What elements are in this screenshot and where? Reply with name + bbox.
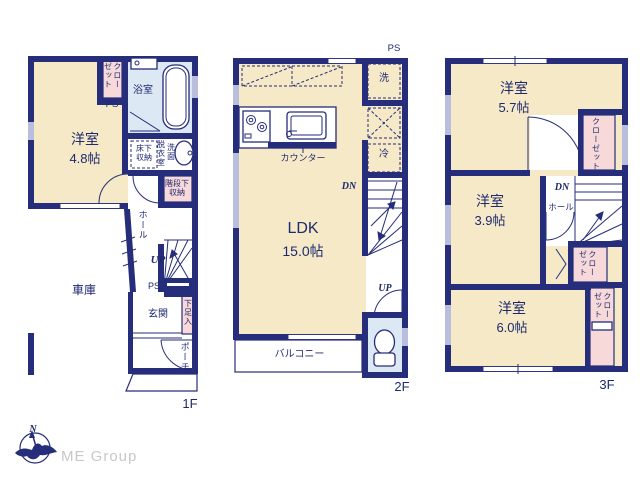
1f-garage-wall — [28, 333, 34, 375]
1f-porch-label: ポーチ — [179, 342, 190, 372]
1f-bottom-window — [60, 204, 120, 209]
compass-north-label: N — [26, 424, 40, 436]
3f-room-c-label: 洋室 — [480, 300, 544, 316]
3f-room-b-size: 3.9帖 — [458, 214, 522, 229]
1f-room-size: 4.8帖 — [50, 152, 120, 167]
2f-dn-label: DN — [336, 181, 362, 193]
3f-room-c-size: 6.0帖 — [480, 321, 544, 336]
3f-dn-label: DN — [549, 182, 575, 194]
1f-bath-window — [192, 76, 198, 98]
floor-plan-page: 洋室 4.8帖 クローゼット PS 浴室 床下 収納 脱衣室 洗面 階段下 収納… — [0, 0, 640, 480]
1f-ps-mid-label: PS — [142, 281, 160, 291]
1f-washroom-door-arc — [133, 176, 160, 203]
2f-washer-label: 洗 — [372, 73, 396, 85]
2f-fridge-label: 冷 — [372, 149, 396, 161]
1f-closet-label: クローゼット — [103, 62, 122, 96]
porch-step — [126, 374, 197, 391]
1f-shoe-label: 下足入 — [183, 299, 192, 331]
1f-hall-label: ホール — [137, 210, 148, 244]
3f-room-a-label: 洋室 — [482, 80, 546, 96]
bathtub — [163, 65, 189, 129]
1f-stair-storage-label: 階段下 収納 — [160, 179, 194, 197]
1f-left-window — [28, 122, 34, 140]
1f-ps-top-label: PS — [98, 100, 126, 111]
2f-balcony-window — [288, 335, 356, 340]
1f-garage-label: 車庫 — [62, 284, 106, 298]
2f-top-window — [328, 59, 356, 64]
2f-ldk-label: LDK — [266, 220, 340, 238]
3f-hall-label: ホール — [544, 203, 578, 213]
2f-ldk-size: 15.0帖 — [266, 243, 340, 259]
2f-counter-label: カウンター — [272, 153, 334, 163]
3f-room-a-size: 5.7帖 — [482, 101, 546, 116]
1f-vanity-label: 洗面 — [166, 143, 175, 165]
1f-floor-label: 1F — [176, 397, 204, 412]
2f-stair-hall-area — [366, 178, 402, 334]
3f-closet-a-label: クローゼット — [591, 117, 600, 171]
2f-toilet-window — [402, 328, 408, 346]
3f-room-b-label: 洋室 — [458, 193, 522, 209]
2f-left-window-1 — [233, 85, 239, 105]
counter-front-edge — [268, 142, 336, 148]
2f-left-window-2 — [233, 153, 239, 228]
1f-slanted-wall — [124, 209, 136, 292]
company-logo-text: ME Group — [61, 448, 137, 465]
3f-closet-c-label: クローゼット — [593, 292, 612, 324]
1f-up-label: UP — [146, 254, 170, 267]
3f-left-window-1 — [445, 95, 451, 135]
stove — [243, 111, 270, 142]
1f-entry-label: 玄関 — [142, 309, 174, 321]
1f-floor-storage-label: 床下 収納 — [131, 144, 157, 162]
3f-right-window — [622, 125, 628, 165]
floor-plan-canvas — [0, 0, 640, 480]
2f-floor-label: 2F — [388, 380, 416, 395]
3f-left-window-3 — [445, 305, 451, 345]
2f-ps-label: PS — [382, 44, 406, 55]
1f-room-label: 洋室 — [50, 131, 120, 147]
3f-closet-b-label: クローゼット — [578, 250, 597, 282]
3f-left-window-2 — [445, 205, 451, 245]
washbasin — [175, 141, 193, 165]
floor-2f-plan — [233, 58, 408, 378]
2f-balcony-label: バルコニー — [252, 349, 347, 361]
1f-bath-label: 浴室 — [133, 85, 153, 97]
toilet — [374, 330, 395, 366]
2f-up-label: UP — [372, 283, 398, 295]
logo-bird-icon — [15, 443, 57, 459]
3f-floor-label: 3F — [592, 378, 622, 393]
1f-dressing-label: 脱衣室 — [156, 140, 165, 170]
